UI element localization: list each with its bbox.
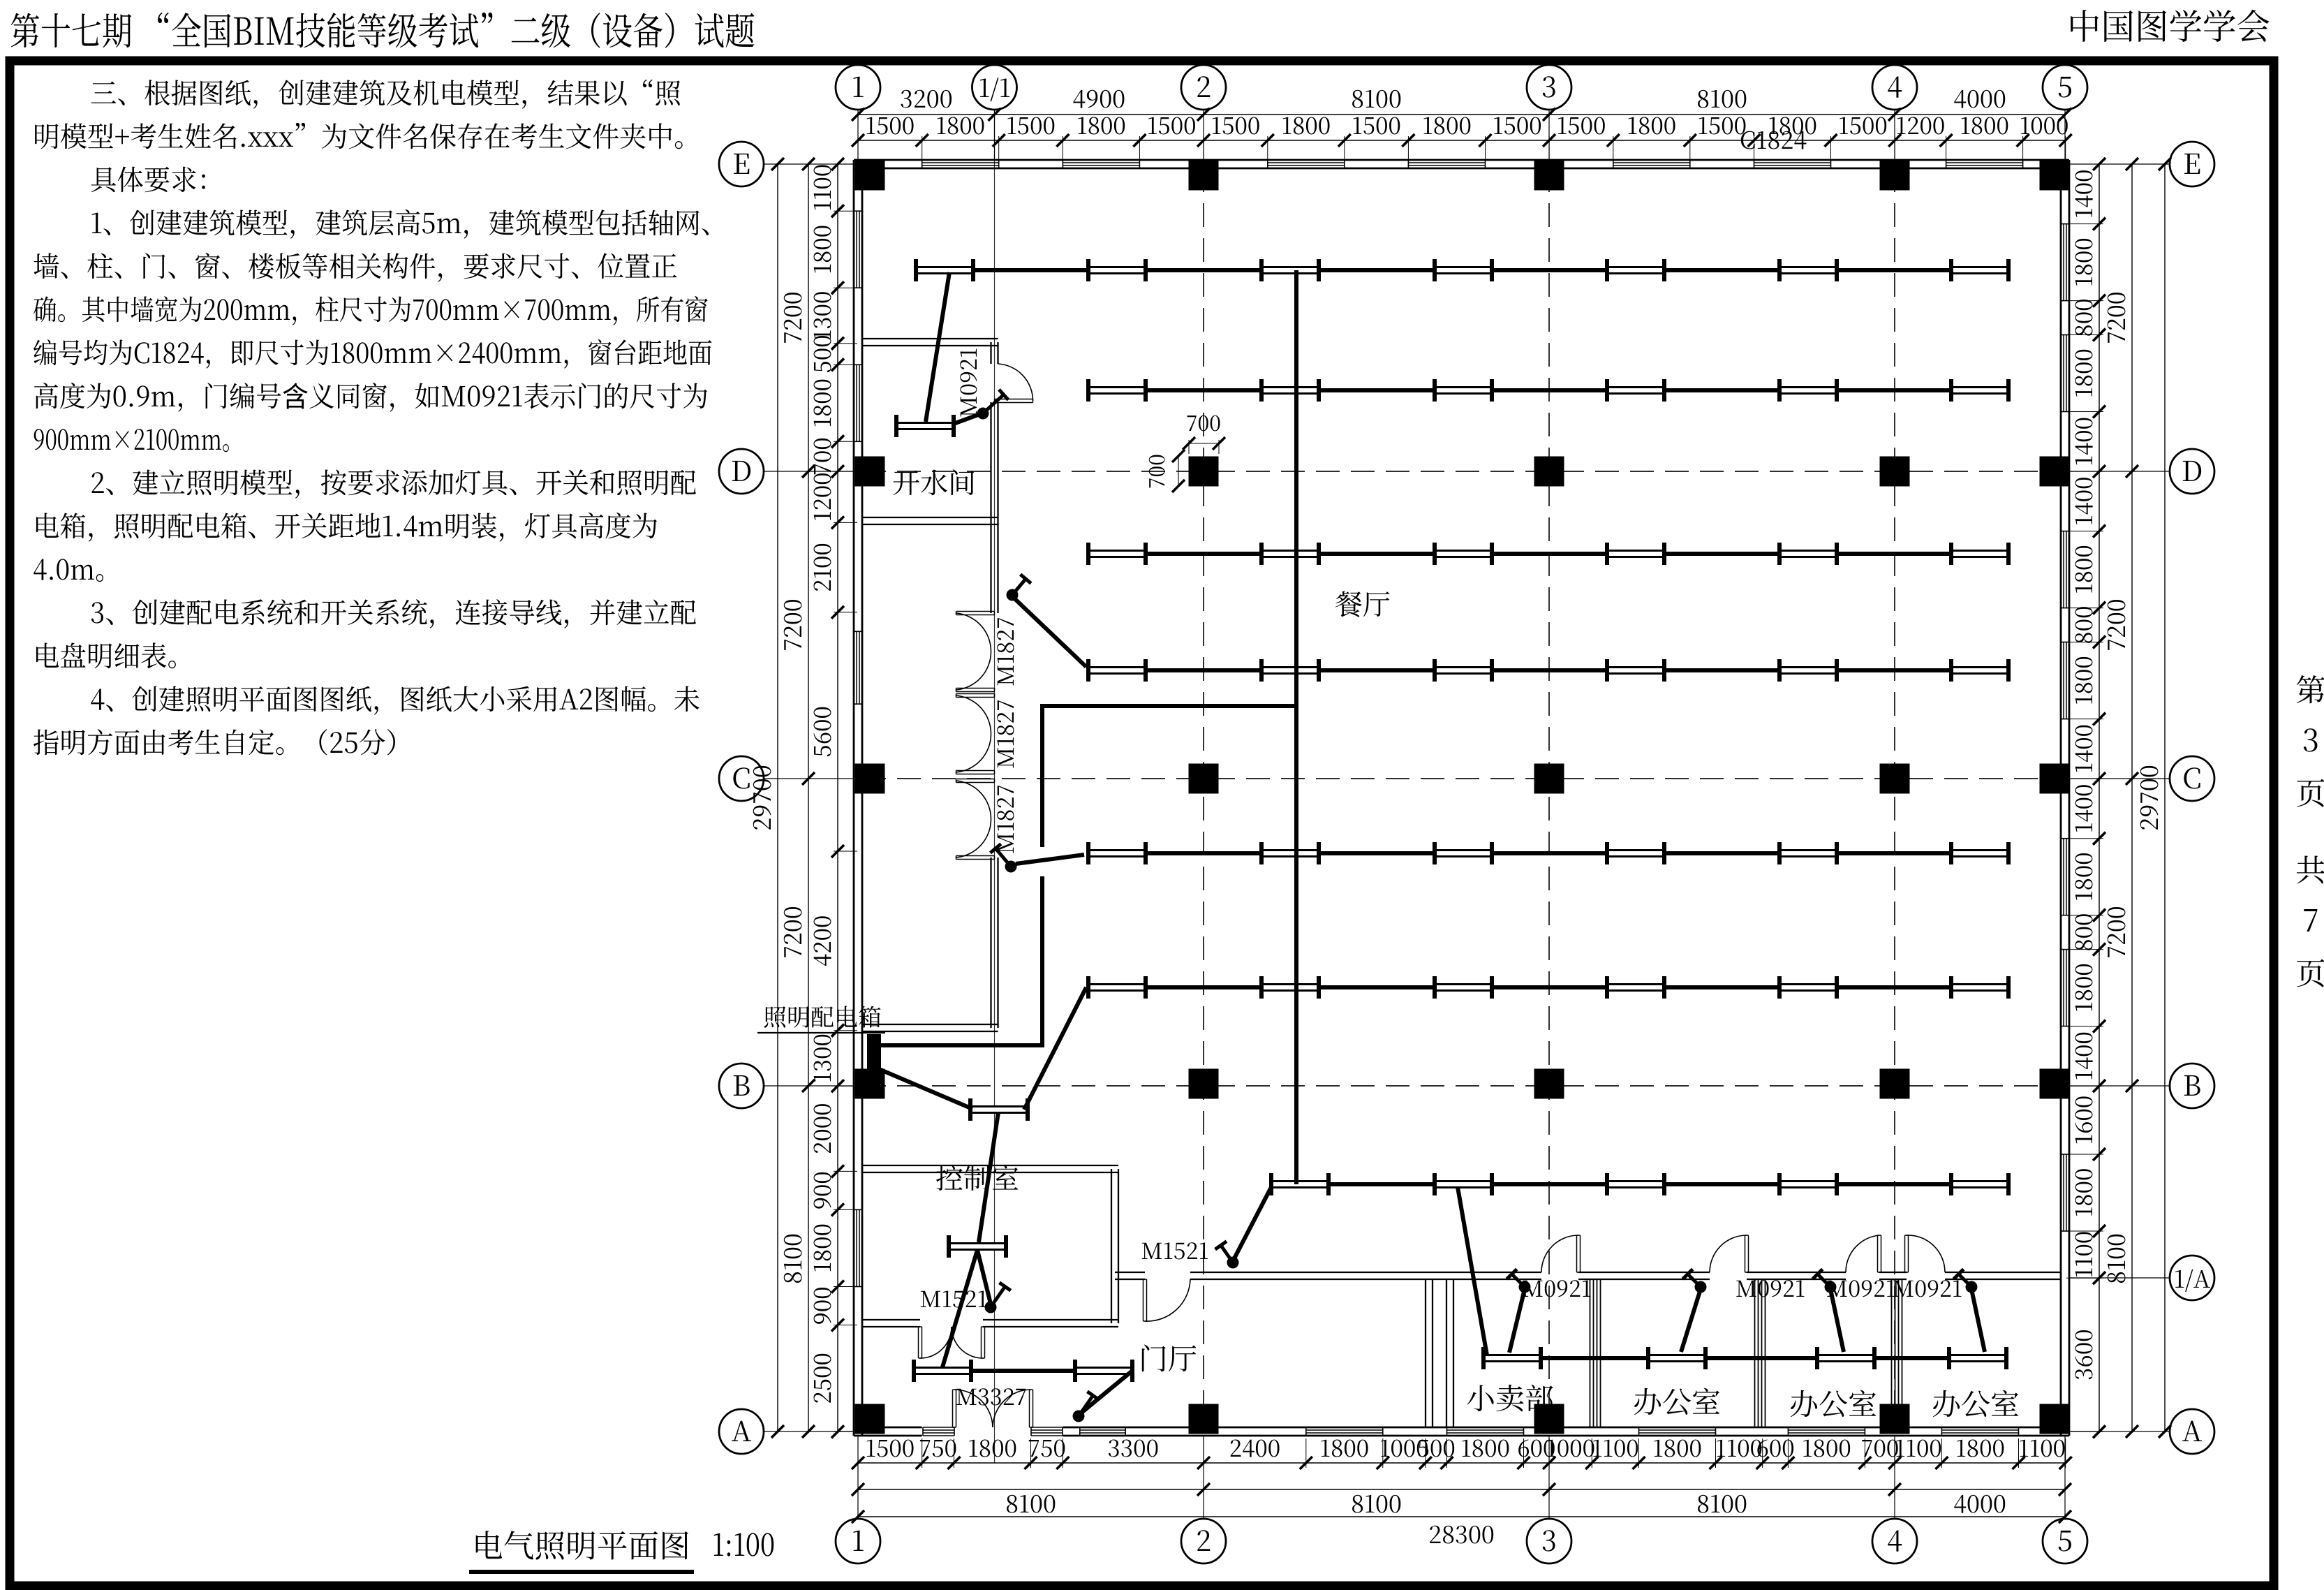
- svg-text:3、创建配电系统和开关系统，连接导线，并建立配: 3、创建配电系统和开关系统，连接导线，并建立配: [90, 591, 697, 631]
- svg-text:500: 500: [805, 334, 838, 373]
- svg-text:餐厅: 餐厅: [1335, 583, 1391, 623]
- svg-text:1200: 1200: [1896, 108, 1946, 141]
- svg-text:7200: 7200: [774, 598, 808, 652]
- svg-text:编号均为C1824，即尺寸为1800mm×2400mm，窗台: 编号均为C1824，即尺寸为1800mm×2400mm，窗台距地面: [33, 332, 713, 371]
- svg-text:7200: 7200: [774, 906, 808, 959]
- svg-text:3: 3: [1541, 1519, 1557, 1559]
- svg-text:8100: 8100: [1351, 1485, 1402, 1519]
- svg-text:A: A: [2182, 1410, 2203, 1450]
- svg-text:电气照明平面图: 电气照明平面图: [472, 1521, 690, 1566]
- svg-text:1800: 1800: [1422, 108, 1472, 141]
- svg-text:1800: 1800: [1627, 108, 1676, 141]
- svg-text:开水间: 开水间: [892, 462, 976, 501]
- svg-text:1400: 1400: [2066, 476, 2099, 526]
- svg-text:1500: 1500: [1147, 108, 1197, 141]
- svg-text:照明配电箱: 照明配电箱: [763, 999, 882, 1033]
- svg-text:7200: 7200: [2098, 906, 2132, 959]
- svg-text:D: D: [2182, 450, 2203, 489]
- svg-text:3600: 3600: [2066, 1329, 2099, 1381]
- svg-text:A: A: [732, 1410, 752, 1450]
- svg-text:28300: 28300: [1428, 1516, 1495, 1550]
- svg-text:墙、柱、门、窗、楼板等相关构件，要求尺寸、位置正: 墙、柱、门、窗、楼板等相关构件，要求尺寸、位置正: [33, 245, 678, 285]
- svg-text:第: 第: [2295, 665, 2324, 710]
- svg-text:7: 7: [2302, 896, 2319, 941]
- svg-text:1、创建建筑模型，建筑层高5m，建筑模型包括轴网、: 1、创建建筑模型，建筑层高5m，建筑模型包括轴网、: [90, 202, 727, 242]
- svg-text:M0921: M0921: [1893, 1272, 1962, 1304]
- svg-text:1800: 1800: [805, 225, 838, 274]
- svg-text:1/A: 1/A: [2174, 1260, 2211, 1295]
- svg-text:5: 5: [2057, 66, 2073, 105]
- svg-text:1800: 1800: [2066, 656, 2099, 705]
- svg-text:1800: 1800: [935, 108, 985, 141]
- svg-text:2: 2: [1196, 66, 1211, 105]
- svg-text:1000: 1000: [2020, 108, 2069, 141]
- svg-text:M1521: M1521: [919, 1282, 987, 1314]
- svg-text:页: 页: [2295, 769, 2324, 814]
- svg-text:1800: 1800: [1960, 108, 2009, 141]
- svg-text:900: 900: [805, 1171, 838, 1209]
- svg-text:控制室: 控制室: [935, 1157, 1019, 1197]
- svg-text:1: 1: [852, 1519, 865, 1559]
- svg-text:4: 4: [1887, 1519, 1902, 1559]
- svg-text:800: 800: [2066, 606, 2099, 645]
- svg-text:7200: 7200: [774, 291, 808, 344]
- svg-text:M0921: M0921: [1826, 1272, 1896, 1304]
- svg-text:1500: 1500: [865, 108, 915, 141]
- svg-text:1800: 1800: [1076, 108, 1126, 141]
- svg-text:700: 700: [1140, 454, 1171, 489]
- svg-text:7200: 7200: [2098, 291, 2132, 344]
- svg-text:明模型+考生姓名.xxx”为文件名保存在考生文件夹中。: 明模型+考生姓名.xxx”为文件名保存在考生文件夹中。: [33, 115, 701, 155]
- svg-text:1800: 1800: [2066, 348, 2099, 398]
- svg-text:1800: 1800: [805, 378, 838, 428]
- svg-text:1400: 1400: [2066, 417, 2099, 466]
- svg-text:M0921: M0921: [1522, 1272, 1592, 1304]
- svg-text:办公室: 办公室: [1789, 1382, 1877, 1424]
- svg-text:E: E: [732, 142, 750, 182]
- svg-text:1800: 1800: [1281, 108, 1331, 141]
- svg-text:1600: 1600: [2066, 1096, 2099, 1145]
- svg-text:指明方面由考生自定。（25分）: 指明方面由考生自定。（25分）: [33, 721, 413, 761]
- svg-text:8100: 8100: [1696, 1485, 1747, 1519]
- svg-text:1300: 1300: [805, 1033, 838, 1083]
- svg-text:1500: 1500: [1211, 108, 1261, 141]
- svg-text:M0921: M0921: [1735, 1272, 1805, 1304]
- svg-text:M1521: M1521: [1141, 1234, 1208, 1266]
- svg-text:第十七期 “全国BIM技能等级考试”二级（设备）试题: 第十七期 “全国BIM技能等级考试”二级（设备）试题: [10, 2, 755, 56]
- svg-text:B: B: [2183, 1064, 2202, 1104]
- svg-text:2500: 2500: [805, 1353, 838, 1404]
- svg-text:8100: 8100: [774, 1233, 808, 1284]
- svg-text:800: 800: [2066, 298, 2099, 337]
- svg-text:1100: 1100: [805, 164, 838, 212]
- svg-text:M1827: M1827: [989, 699, 1021, 769]
- svg-text:7200: 7200: [2098, 598, 2132, 652]
- svg-text:C1824: C1824: [1740, 122, 1807, 156]
- svg-text:门厅: 门厅: [1139, 1337, 1197, 1378]
- svg-text:具体要求：: 具体要求：: [90, 159, 224, 198]
- svg-text:1500: 1500: [1557, 108, 1606, 141]
- svg-text:2100: 2100: [805, 543, 838, 592]
- svg-text:E: E: [2183, 142, 2201, 182]
- svg-text:1400: 1400: [2066, 724, 2099, 774]
- svg-text:电箱，照明配电箱、开关距地1.4m明装，灯具高度为: 电箱，照明配电箱、开关距地1.4m明装，灯具高度为: [33, 505, 658, 545]
- svg-text:1200: 1200: [805, 472, 838, 522]
- svg-text:1800: 1800: [2066, 1168, 2099, 1218]
- svg-text:1800: 1800: [2066, 852, 2099, 901]
- svg-text:M0921: M0921: [952, 348, 984, 418]
- svg-text:4: 4: [1887, 66, 1902, 105]
- svg-text:1400: 1400: [2066, 784, 2099, 834]
- svg-text:M1827: M1827: [989, 617, 1021, 686]
- svg-text:1400: 1400: [2066, 1031, 2099, 1081]
- svg-text:4200: 4200: [805, 915, 838, 967]
- svg-text:办公室: 办公室: [1932, 1382, 2020, 1424]
- svg-text:M3327: M3327: [956, 1380, 1027, 1412]
- svg-text:页: 页: [2295, 949, 2324, 994]
- svg-text:4.0m。: 4.0m。: [33, 548, 121, 588]
- svg-text:高度为0.9m，门编号含义同窗，如M0921表示门的尺寸为: 高度为0.9m，门编号含义同窗，如M0921表示门的尺寸为: [33, 375, 709, 415]
- svg-text:1800: 1800: [2066, 963, 2099, 1013]
- svg-text:1800: 1800: [968, 1431, 1017, 1464]
- svg-text:4、创建照明平面图图纸，图纸大小采用A2图幅。未: 4、创建照明平面图图纸，图纸大小采用A2图幅。未: [90, 678, 700, 718]
- svg-text:C: C: [2182, 757, 2202, 797]
- svg-text:1500: 1500: [1352, 108, 1401, 141]
- svg-text:8100: 8100: [1005, 1485, 1056, 1519]
- svg-text:C: C: [732, 757, 751, 797]
- svg-text:800: 800: [2066, 913, 2099, 952]
- svg-text:共: 共: [2295, 846, 2324, 890]
- svg-text:确。其中墙宽为200mm，柱尺寸为700mm×700mm，所: 确。其中墙宽为200mm，柱尺寸为700mm×700mm，所有窗: [33, 288, 709, 328]
- svg-text:5: 5: [2057, 1519, 2073, 1559]
- svg-text:900: 900: [805, 1286, 838, 1325]
- svg-text:1/1: 1/1: [978, 69, 1011, 105]
- svg-text:1800: 1800: [2066, 237, 2099, 287]
- svg-text:1400: 1400: [2066, 169, 2099, 219]
- svg-text:1800: 1800: [805, 1223, 838, 1273]
- svg-text:M1827: M1827: [989, 784, 1021, 854]
- svg-text:1500: 1500: [1006, 108, 1056, 141]
- svg-text:3: 3: [1541, 66, 1557, 105]
- svg-text:2: 2: [1196, 1519, 1211, 1559]
- svg-text:1300: 1300: [805, 291, 838, 341]
- svg-text:三、根据图纸，创建建筑及机电模型，结果以“照: 三、根据图纸，创建建筑及机电模型，结果以“照: [90, 72, 681, 112]
- svg-text:小卖部: 小卖部: [1466, 1376, 1554, 1418]
- svg-text:中国图学学会: 中国图学学会: [2067, 0, 2270, 50]
- svg-text:700: 700: [1186, 406, 1221, 437]
- svg-text:1500: 1500: [1493, 108, 1542, 141]
- svg-text:4000: 4000: [1953, 1485, 2006, 1519]
- svg-text:1:100: 1:100: [712, 1520, 775, 1565]
- svg-text:2、建立照明模型，按要求添加灯具、开关和照明配: 2、建立照明模型，按要求添加灯具、开关和照明配: [90, 462, 697, 501]
- svg-text:1800: 1800: [2066, 545, 2099, 594]
- svg-text:1500: 1500: [1838, 108, 1888, 141]
- svg-text:D: D: [731, 450, 753, 489]
- svg-text:900mm×2100mm。: 900mm×2100mm。: [33, 418, 244, 458]
- svg-text:3: 3: [2302, 716, 2320, 760]
- svg-text:B: B: [732, 1064, 751, 1104]
- svg-text:1100: 1100: [2066, 1231, 2099, 1279]
- svg-text:电盘明细表。: 电盘明细表。: [33, 635, 194, 675]
- svg-text:8100: 8100: [2098, 1233, 2132, 1284]
- svg-text:1: 1: [852, 66, 865, 105]
- svg-text:5600: 5600: [805, 706, 838, 758]
- svg-text:2000: 2000: [805, 1103, 838, 1155]
- svg-text:办公室: 办公室: [1633, 1380, 1721, 1422]
- svg-text:29700: 29700: [2131, 765, 2165, 831]
